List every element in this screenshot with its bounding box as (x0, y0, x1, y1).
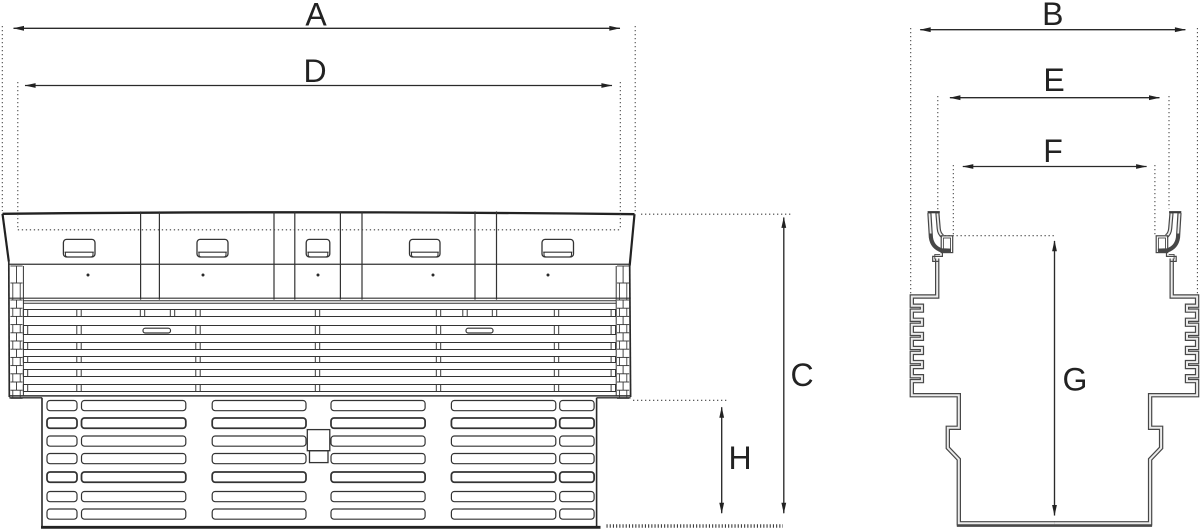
svg-text:F: F (1043, 133, 1063, 169)
svg-text:D: D (303, 53, 326, 89)
svg-text:H: H (729, 440, 752, 476)
svg-text:B: B (1042, 0, 1063, 32)
svg-text:A: A (305, 0, 327, 32)
svg-text:C: C (791, 357, 814, 393)
svg-text:E: E (1043, 62, 1064, 98)
svg-text:G: G (1063, 362, 1088, 398)
